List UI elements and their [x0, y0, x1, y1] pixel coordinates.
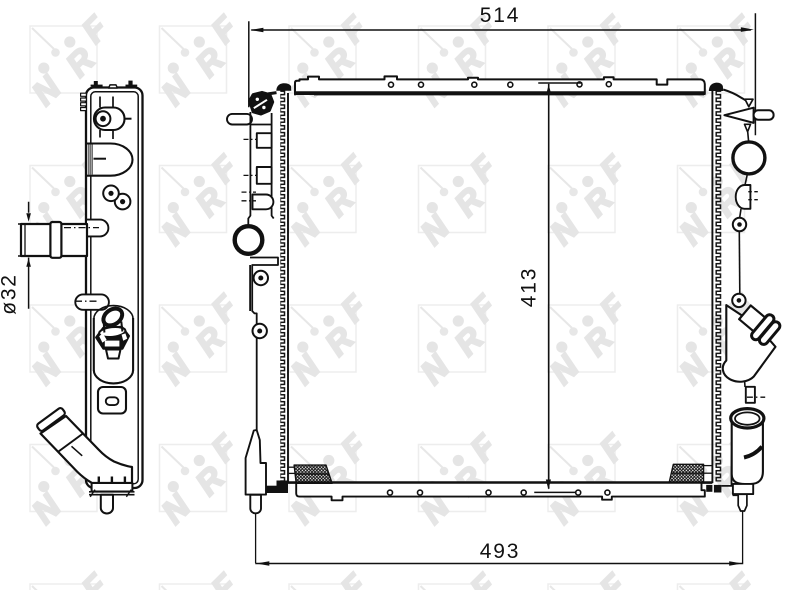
svg-text:413: 413 [518, 267, 541, 307]
svg-text:493: 493 [480, 540, 520, 563]
svg-text:ø32: ø32 [0, 273, 21, 315]
svg-text:514: 514 [480, 4, 520, 27]
